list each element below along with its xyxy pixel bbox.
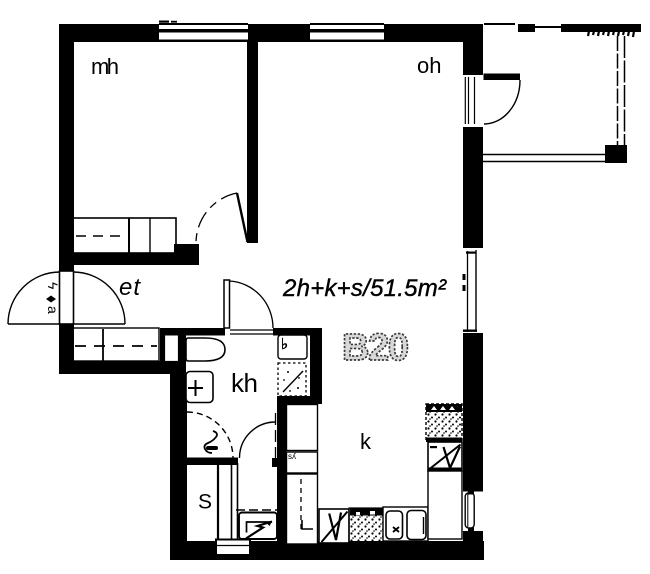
svg-text:sʎ: sʎ — [288, 452, 296, 461]
svg-text:S: S — [198, 491, 212, 514]
svg-text:mh: mh — [91, 54, 119, 79]
svg-text:et: et — [119, 274, 141, 301]
svg-text:a: a — [45, 306, 61, 314]
svg-text:k: k — [360, 429, 372, 454]
svg-text:♭: ♭ — [281, 336, 288, 353]
svg-text:B20: B20 — [342, 327, 412, 369]
svg-text:kh: kh — [231, 368, 258, 398]
svg-text:oh: oh — [417, 53, 441, 78]
svg-text:2h+k+s/51.5m²: 2h+k+s/51.5m² — [282, 275, 447, 302]
svg-text:ϟ: ϟ — [45, 282, 61, 290]
